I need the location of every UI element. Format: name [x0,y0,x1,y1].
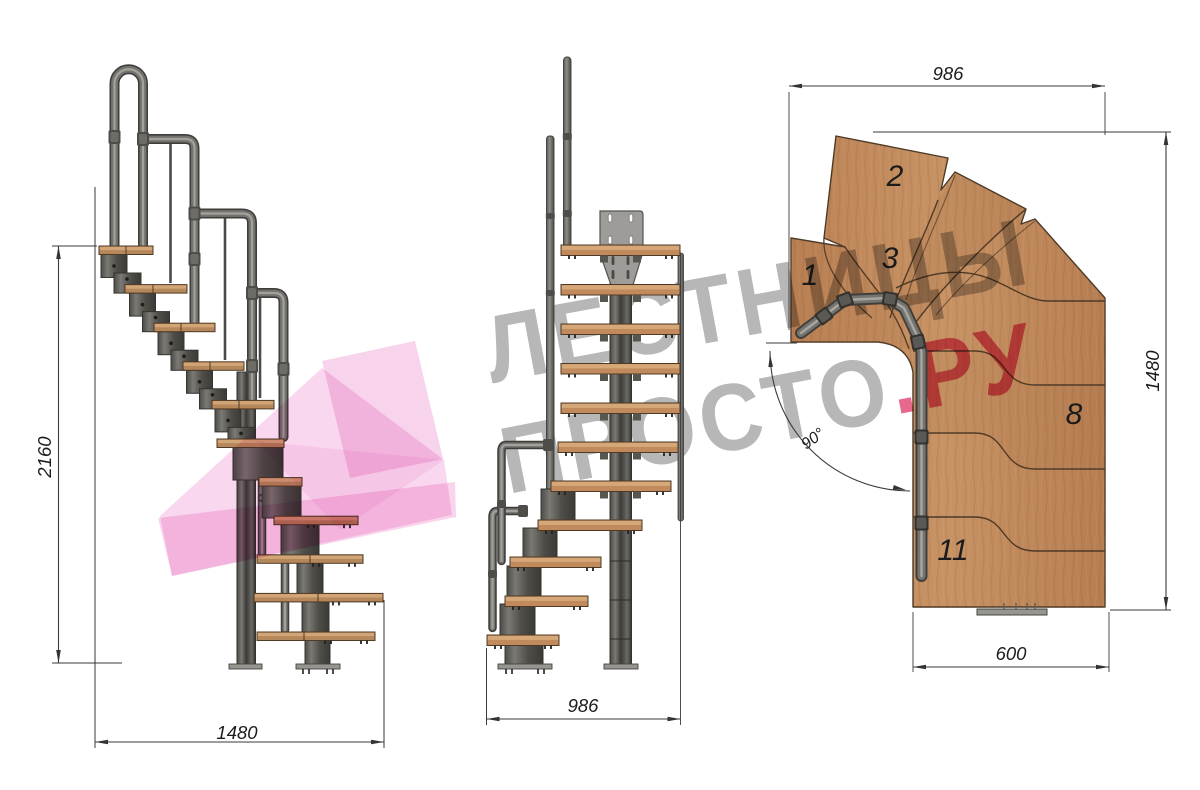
svg-text:8: 8 [1066,398,1083,431]
svg-text:600: 600 [996,643,1028,664]
svg-text:1480: 1480 [1142,350,1163,392]
svg-text:2: 2 [886,160,904,193]
svg-text:986: 986 [933,63,965,84]
svg-text:1480: 1480 [216,722,258,743]
svg-text:986: 986 [568,695,600,716]
svg-text:2160: 2160 [34,436,55,479]
svg-text:11: 11 [937,534,968,567]
